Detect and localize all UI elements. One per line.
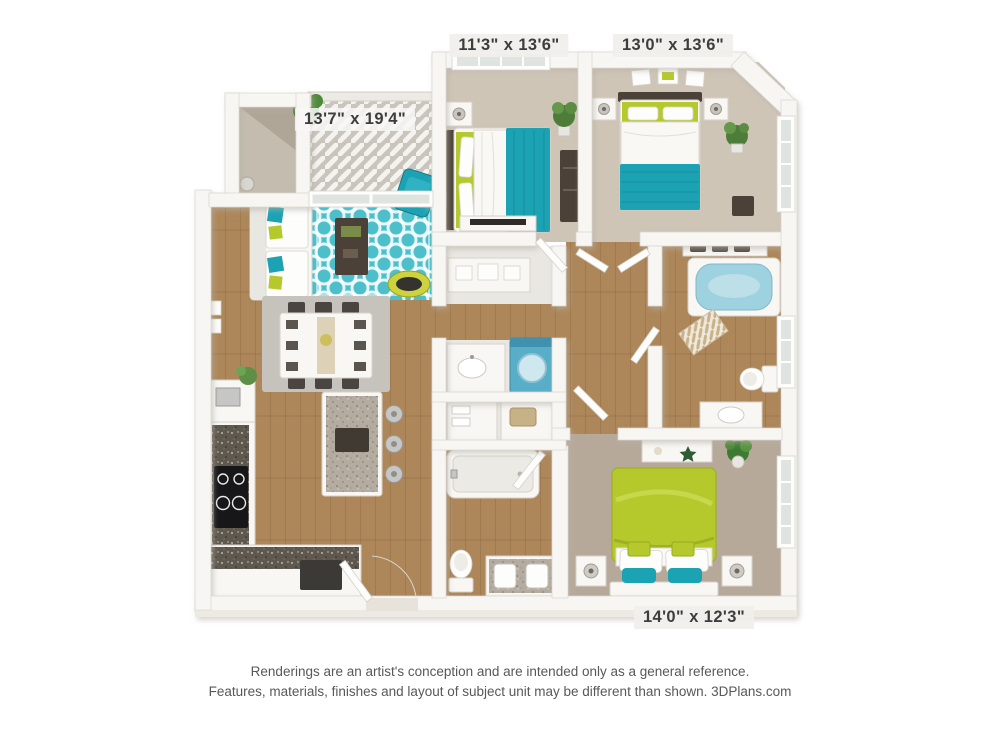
dimension-label-living-area: 13'7" x 19'4"	[295, 108, 415, 131]
balcony-railing	[308, 92, 434, 101]
dimension-label-bedroom-bottom: 14'0" x 12'3"	[634, 606, 754, 629]
dimension-label-bedroom-top-left: 11'3" x 13'6"	[449, 34, 568, 57]
wall-left	[195, 190, 211, 610]
bathtub-right	[688, 258, 780, 316]
window-bath-right	[777, 316, 795, 388]
window-bedroom2	[777, 116, 795, 212]
nightstand-3-right	[722, 556, 752, 586]
dining-area	[262, 296, 390, 392]
floor-lamp	[240, 177, 254, 191]
laundry-vanity	[447, 344, 505, 394]
floorplan-canvas	[0, 0, 1000, 749]
disclaimer: Renderings are an artist's conception an…	[0, 662, 1000, 702]
nightstand-1	[446, 102, 472, 126]
pet-bed	[388, 271, 430, 297]
coffee-table	[335, 218, 368, 275]
toilet-middle	[449, 550, 473, 592]
wall-frames-bedroom2	[631, 68, 704, 87]
sliding-door-balcony	[309, 191, 433, 207]
corner-table	[732, 196, 754, 216]
nightstand-3-left	[576, 556, 606, 586]
window-bedroom3	[777, 456, 795, 548]
floorplan-rendering: 11'3" x 13'6" 13'0" x 13'6" 13'7" x 19'4…	[0, 0, 1000, 749]
entry-niche-console	[448, 258, 530, 292]
toilet-right	[740, 366, 778, 392]
nightstand-2-left	[592, 98, 616, 120]
disclaimer-line-1: Renderings are an artist's conception an…	[0, 662, 1000, 682]
console-bedroom3	[642, 440, 712, 462]
cooktop	[214, 466, 248, 528]
vanity-right	[700, 402, 762, 428]
washer	[510, 338, 554, 394]
bed-2	[618, 92, 702, 210]
nightstand-2-right	[704, 98, 728, 120]
tv-console-1	[460, 216, 536, 231]
sofa	[250, 196, 312, 300]
kitchen-island	[322, 392, 382, 496]
dimension-label-bedroom-top-right: 13'0" x 13'6"	[613, 34, 733, 57]
double-vanity-middle	[486, 556, 558, 596]
dresser-dark	[560, 150, 580, 222]
dark-appliance	[300, 560, 342, 590]
disclaimer-line-2: Features, materials, finishes and layout…	[0, 682, 1000, 702]
